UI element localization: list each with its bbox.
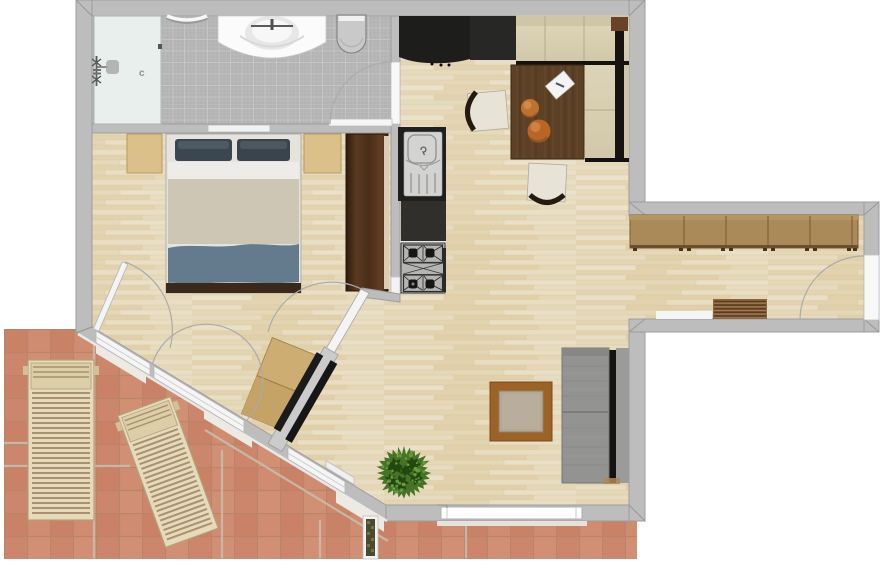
svg-text:c: c [139,68,145,79]
